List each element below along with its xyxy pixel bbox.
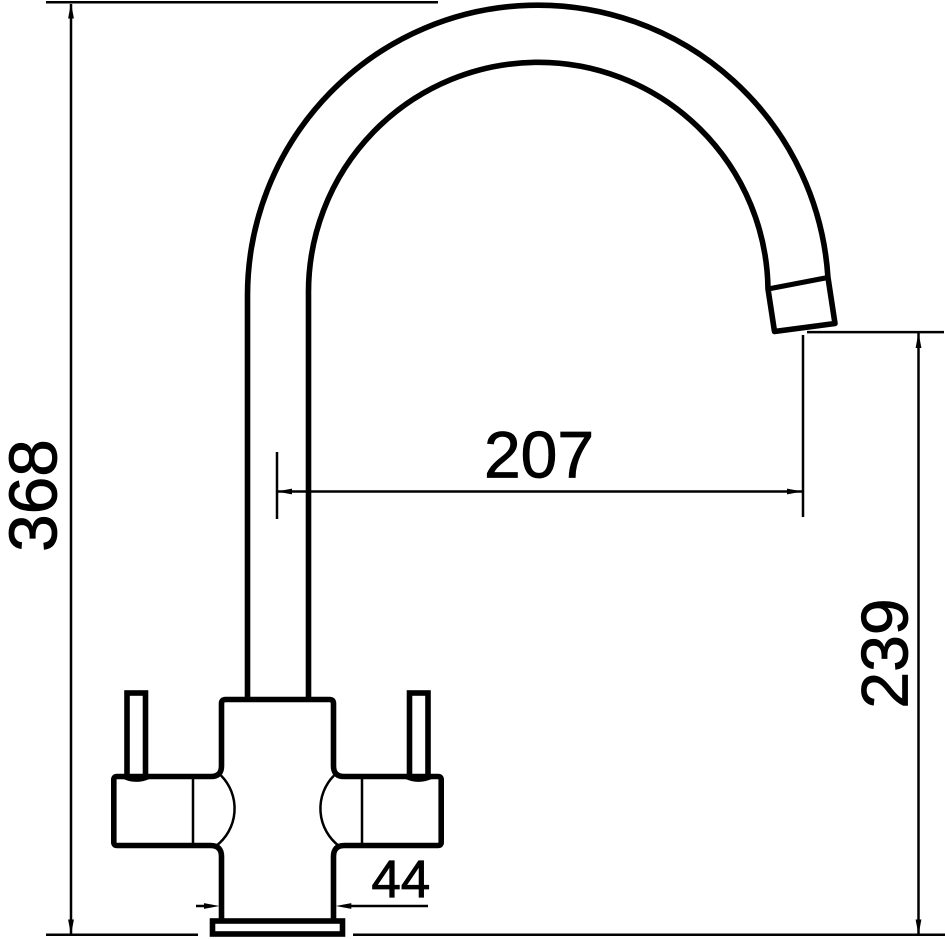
svg-text:207: 207 [484, 418, 594, 492]
svg-text:239: 239 [848, 598, 922, 708]
svg-text:44: 44 [371, 851, 430, 910]
svg-text:368: 368 [0, 439, 72, 552]
